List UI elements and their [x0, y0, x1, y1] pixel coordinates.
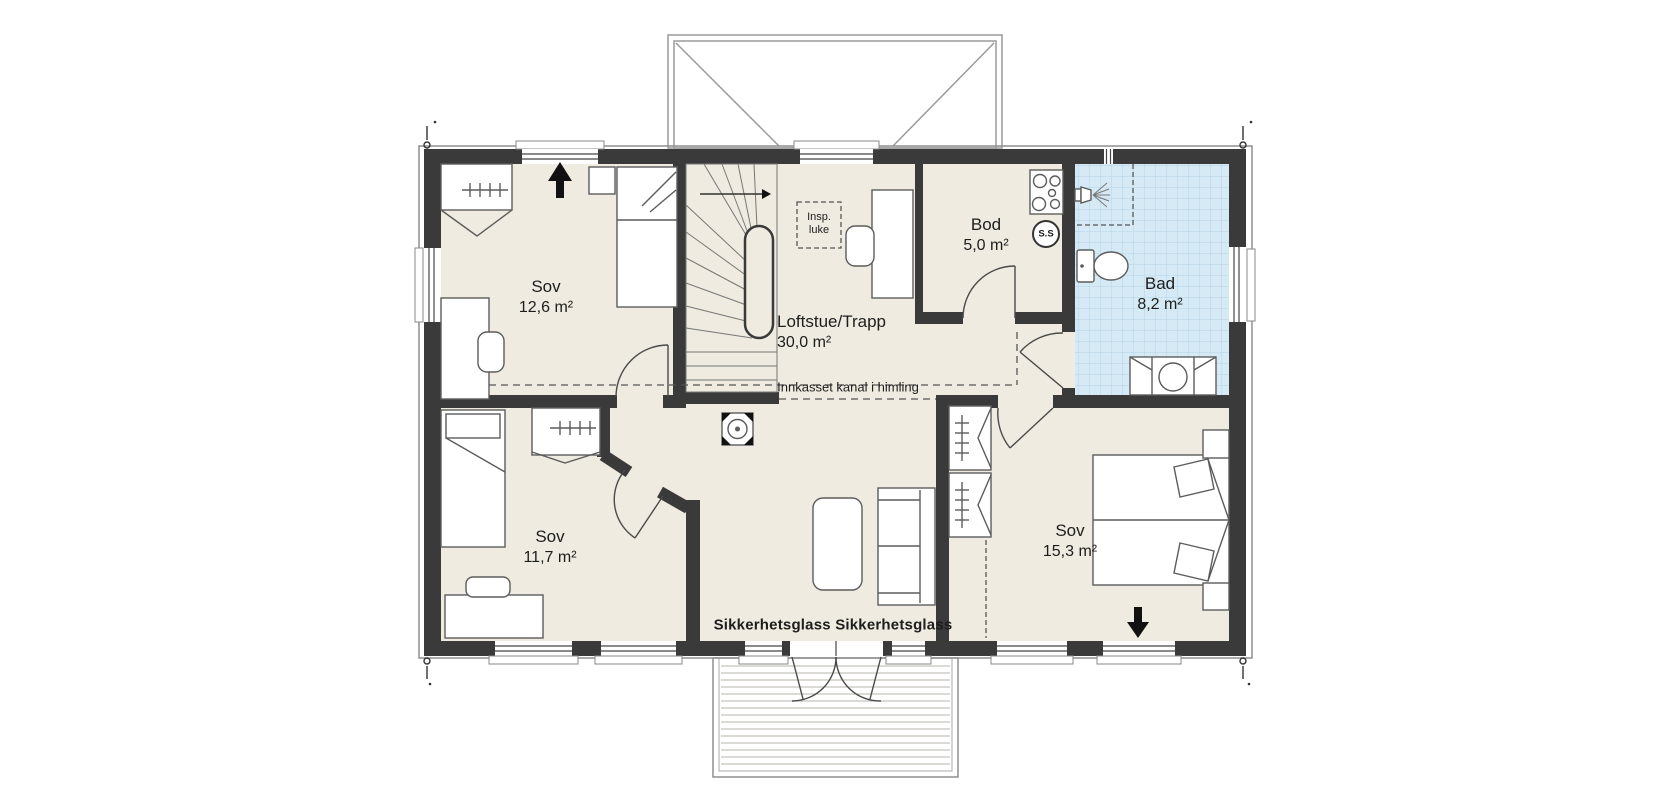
desk-chair [466, 577, 510, 597]
window-loftstue-top [794, 141, 879, 164]
window-sov2-bottom-1 [489, 641, 578, 664]
window-sov1-top [516, 141, 604, 164]
window-loftstue-bottom-right [886, 641, 931, 664]
balcony [713, 658, 958, 777]
inspection-hatch-label: Insp. luke [807, 211, 831, 237]
room-area: 11,7 m² [523, 547, 576, 568]
chimney [722, 413, 753, 445]
safety-glass-label-left: Sikkerhetsglass [714, 617, 831, 634]
nightstand-1 [1203, 430, 1229, 458]
nightstand [589, 167, 615, 194]
room-label-bod: Bod 5,0 m² [963, 214, 1008, 256]
bed-double [1093, 455, 1229, 585]
window-bathroom-right [1229, 247, 1255, 322]
room-label-sov-11: Sov 11,7 m² [523, 526, 576, 568]
wardrobe [532, 408, 600, 463]
floor-plan-drawing [0, 0, 1670, 800]
inspection-hatch-line1: Insp. [807, 211, 831, 224]
room-name: Loftstue/Trapp [777, 311, 886, 332]
room-name: Bod [963, 214, 1008, 235]
dormer-roof-outline [668, 35, 1002, 148]
room-name: Sov [519, 276, 573, 297]
central-vacuum-badge-label: S.S [1038, 229, 1053, 240]
room-label-bad: Bad 8,2 m² [1137, 273, 1182, 315]
desk [445, 595, 543, 638]
desk-chair [478, 332, 504, 372]
vanity-sink [1130, 357, 1216, 395]
bed-single [441, 410, 505, 547]
room-name: Bad [1137, 273, 1182, 294]
duct-annotation: Innkasset kanal i himling [777, 380, 919, 395]
window-sov3-bottom-1 [991, 641, 1073, 664]
room-label-loftstue: Loftstue/Trapp 30,0 m² [777, 311, 886, 353]
sofa [878, 488, 935, 605]
wardrobe-1 [949, 406, 991, 470]
room-area: 15,3 m² [1043, 541, 1097, 562]
desk [872, 190, 913, 298]
room-label-sov-15: Sov 15,3 m² [1043, 520, 1097, 562]
stair-railing [745, 226, 773, 338]
room-area: 5,0 m² [963, 235, 1008, 256]
window-sov3-bottom-2 [1097, 641, 1181, 664]
room-name: Sov [523, 526, 576, 547]
room-label-sov-12: Sov 12,6 m² [519, 276, 573, 318]
toilet [1077, 250, 1128, 282]
room-area: 30,0 m² [777, 332, 886, 353]
vent-tick-bathroom-top [1104, 149, 1113, 164]
desk-chair [846, 226, 874, 266]
safety-glass-annotation: Sikkerhetsglass Sikkerhetsglass [714, 617, 953, 634]
room-name: Sov [1043, 520, 1097, 541]
cooktop-icon [1030, 170, 1063, 214]
window-sov2-bottom-2 [595, 641, 682, 664]
room-area: 8,2 m² [1137, 294, 1182, 315]
bed-single [617, 167, 677, 307]
window-loftstue-bottom-left [739, 641, 788, 664]
window-sov1-left [415, 248, 441, 322]
room-area: 12,6 m² [519, 297, 573, 318]
floor-plan-page: Sov 12,6 m² Loftstue/Trapp 30,0 m² Bod 5… [0, 0, 1670, 800]
inspection-hatch-line2: luke [807, 224, 831, 237]
wardrobe-2 [949, 473, 991, 537]
nightstand-2 [1203, 583, 1229, 610]
coffee-table [813, 498, 862, 590]
safety-glass-label-right: Sikkerhetsglass [835, 617, 952, 634]
